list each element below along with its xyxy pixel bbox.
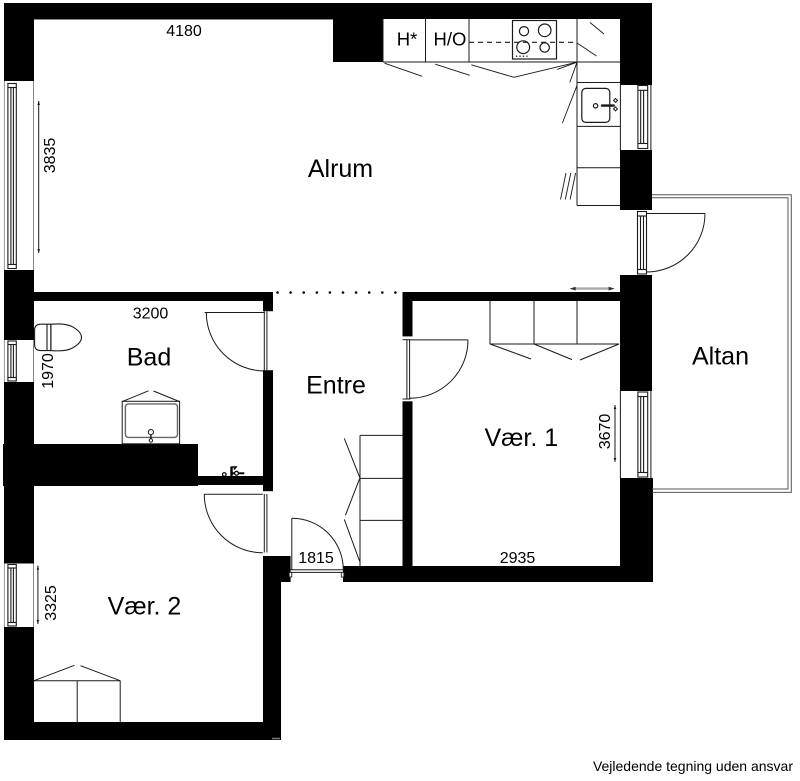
svg-text:Altan: Altan bbox=[692, 343, 749, 371]
svg-text:1815: 1815 bbox=[298, 550, 334, 567]
svg-text:Entre: Entre bbox=[306, 372, 366, 400]
svg-text:Alrum: Alrum bbox=[308, 155, 373, 183]
svg-text:3670: 3670 bbox=[597, 414, 614, 450]
svg-text:3200: 3200 bbox=[133, 306, 169, 323]
svg-text:H/O: H/O bbox=[434, 28, 467, 49]
svg-text:Vær. 2: Vær. 2 bbox=[108, 593, 182, 621]
svg-text:3835: 3835 bbox=[42, 138, 59, 174]
svg-text:H*: H* bbox=[397, 28, 418, 49]
svg-text:4180: 4180 bbox=[166, 23, 202, 40]
svg-text:Vær. 1: Vær. 1 bbox=[484, 424, 558, 452]
svg-text:1970: 1970 bbox=[40, 353, 57, 389]
svg-text:Bad: Bad bbox=[127, 344, 171, 372]
svg-text:Vejledende tegning uden ansvar: Vejledende tegning uden ansvar bbox=[593, 758, 793, 774]
svg-text:3325: 3325 bbox=[43, 585, 60, 621]
svg-text:2935: 2935 bbox=[500, 550, 536, 567]
